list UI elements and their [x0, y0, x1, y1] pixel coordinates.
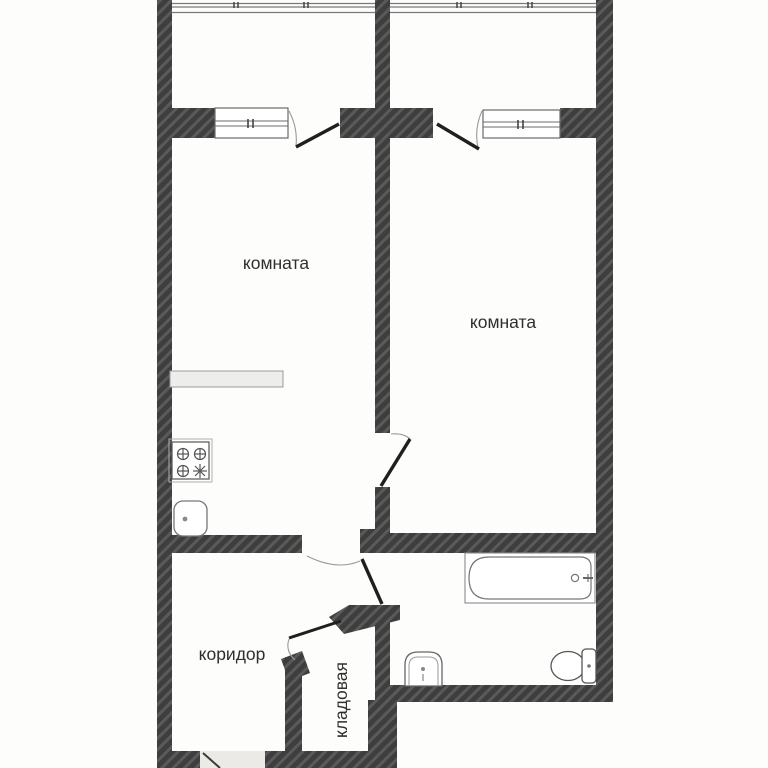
balcony-railing-right — [390, 2, 596, 13]
door-swing-arc — [477, 111, 482, 148]
toilet-button — [587, 664, 591, 668]
bathtub-icon — [465, 553, 595, 603]
wall-outer-right — [596, 0, 613, 702]
wall-right-room-top-b — [560, 108, 596, 138]
window-right-room — [483, 110, 560, 138]
toilet-icon — [551, 649, 596, 683]
wall-bathroom-top — [390, 533, 596, 553]
floor-plan-page: комната комната коридор кладовая — [0, 0, 768, 768]
wall-right-room-top-a — [390, 108, 433, 138]
kitchen-sink-icon — [174, 501, 207, 536]
door-leaf — [296, 124, 339, 147]
wall-hall-stub — [360, 529, 390, 553]
door-swing-arc — [289, 111, 296, 146]
counter — [170, 371, 283, 387]
floor-plan: комната комната коридор кладовая — [0, 0, 768, 768]
toilet-bowl — [551, 652, 585, 681]
balcony-railing-left — [172, 2, 375, 13]
door-leaf — [381, 439, 410, 486]
label-room-right: комната — [470, 312, 536, 332]
room-door-middle — [381, 434, 410, 486]
wall-bathroom-bottom — [390, 685, 613, 702]
door-leaf — [437, 124, 479, 149]
label-storage: кладовая — [331, 662, 351, 738]
wall-middle-upper — [375, 0, 390, 433]
bathroom-door — [307, 556, 382, 604]
window-left-room — [215, 108, 288, 138]
balcony-door-left — [289, 111, 339, 147]
sink-drain — [183, 517, 188, 522]
label-corridor: коридор — [199, 644, 266, 664]
wall-kitchen-bottom — [157, 535, 302, 553]
door-swing-arc — [391, 434, 410, 439]
door-leaf — [362, 559, 382, 604]
wall-left-room-top-a — [172, 108, 215, 138]
basin-faucet — [421, 667, 425, 671]
balcony-door-right — [437, 111, 482, 149]
wall-bottom — [157, 751, 397, 768]
entrance-door — [200, 751, 265, 768]
stove-icon — [169, 439, 212, 482]
door-swing-arc — [307, 556, 360, 565]
wall-left-room-top-b — [340, 108, 375, 138]
door-leaf — [289, 621, 341, 638]
washbasin-icon — [405, 652, 442, 686]
label-room-left: комната — [243, 253, 309, 273]
